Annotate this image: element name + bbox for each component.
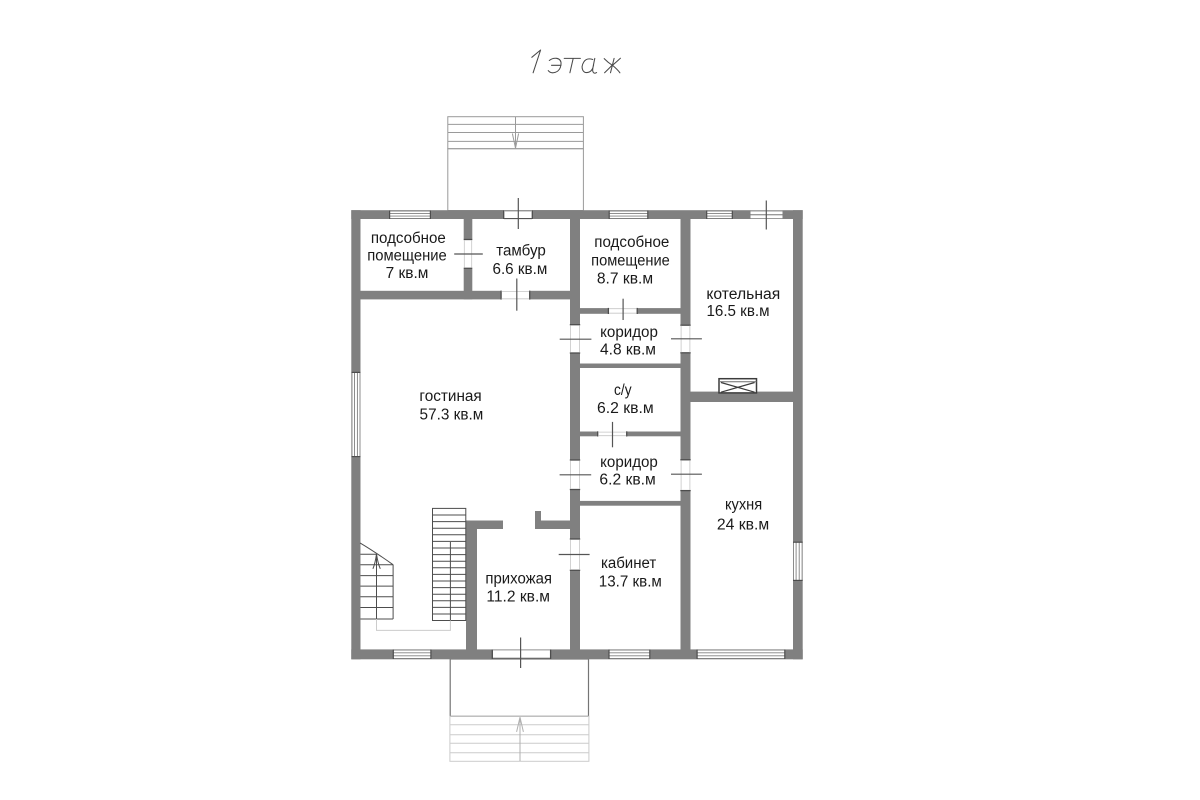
- svg-text:24 кв.м: 24 кв.м: [717, 517, 769, 534]
- svg-text:6.2 кв.м: 6.2 кв.м: [599, 472, 655, 489]
- svg-text:6.2 кв.м: 6.2 кв.м: [597, 400, 654, 417]
- svg-text:11.2 кв.м: 11.2 кв.м: [486, 589, 550, 606]
- svg-text:4.8 кв.м: 4.8 кв.м: [600, 341, 656, 358]
- svg-text:кухня: кухня: [725, 497, 762, 514]
- svg-text:тамбур: тамбур: [496, 243, 546, 260]
- svg-text:прихожая: прихожая: [485, 571, 552, 588]
- svg-text:подсобное: подсобное: [594, 234, 669, 251]
- svg-text:7 кв.м: 7 кв.м: [386, 265, 429, 282]
- svg-text:кабинет: кабинет: [601, 555, 656, 572]
- svg-text:котельная: котельная: [706, 286, 780, 303]
- svg-text:помещение: помещение: [367, 248, 447, 265]
- svg-text:6.6 кв.м: 6.6 кв.м: [493, 261, 548, 278]
- svg-text:16.5 кв.м: 16.5 кв.м: [706, 303, 769, 320]
- svg-text:57.3 кв.м: 57.3 кв.м: [420, 406, 484, 423]
- svg-text:8.7 кв.м: 8.7 кв.м: [597, 271, 653, 288]
- svg-text:помещение: помещение: [591, 253, 670, 270]
- svg-text:коридор: коридор: [600, 324, 658, 341]
- svg-text:с/у: с/у: [614, 382, 632, 399]
- svg-text:коридор: коридор: [600, 454, 658, 471]
- svg-text:гостиная: гостиная: [419, 388, 481, 405]
- svg-text:подсобное: подсобное: [371, 230, 446, 247]
- svg-text:13.7 кв.м: 13.7 кв.м: [599, 573, 662, 590]
